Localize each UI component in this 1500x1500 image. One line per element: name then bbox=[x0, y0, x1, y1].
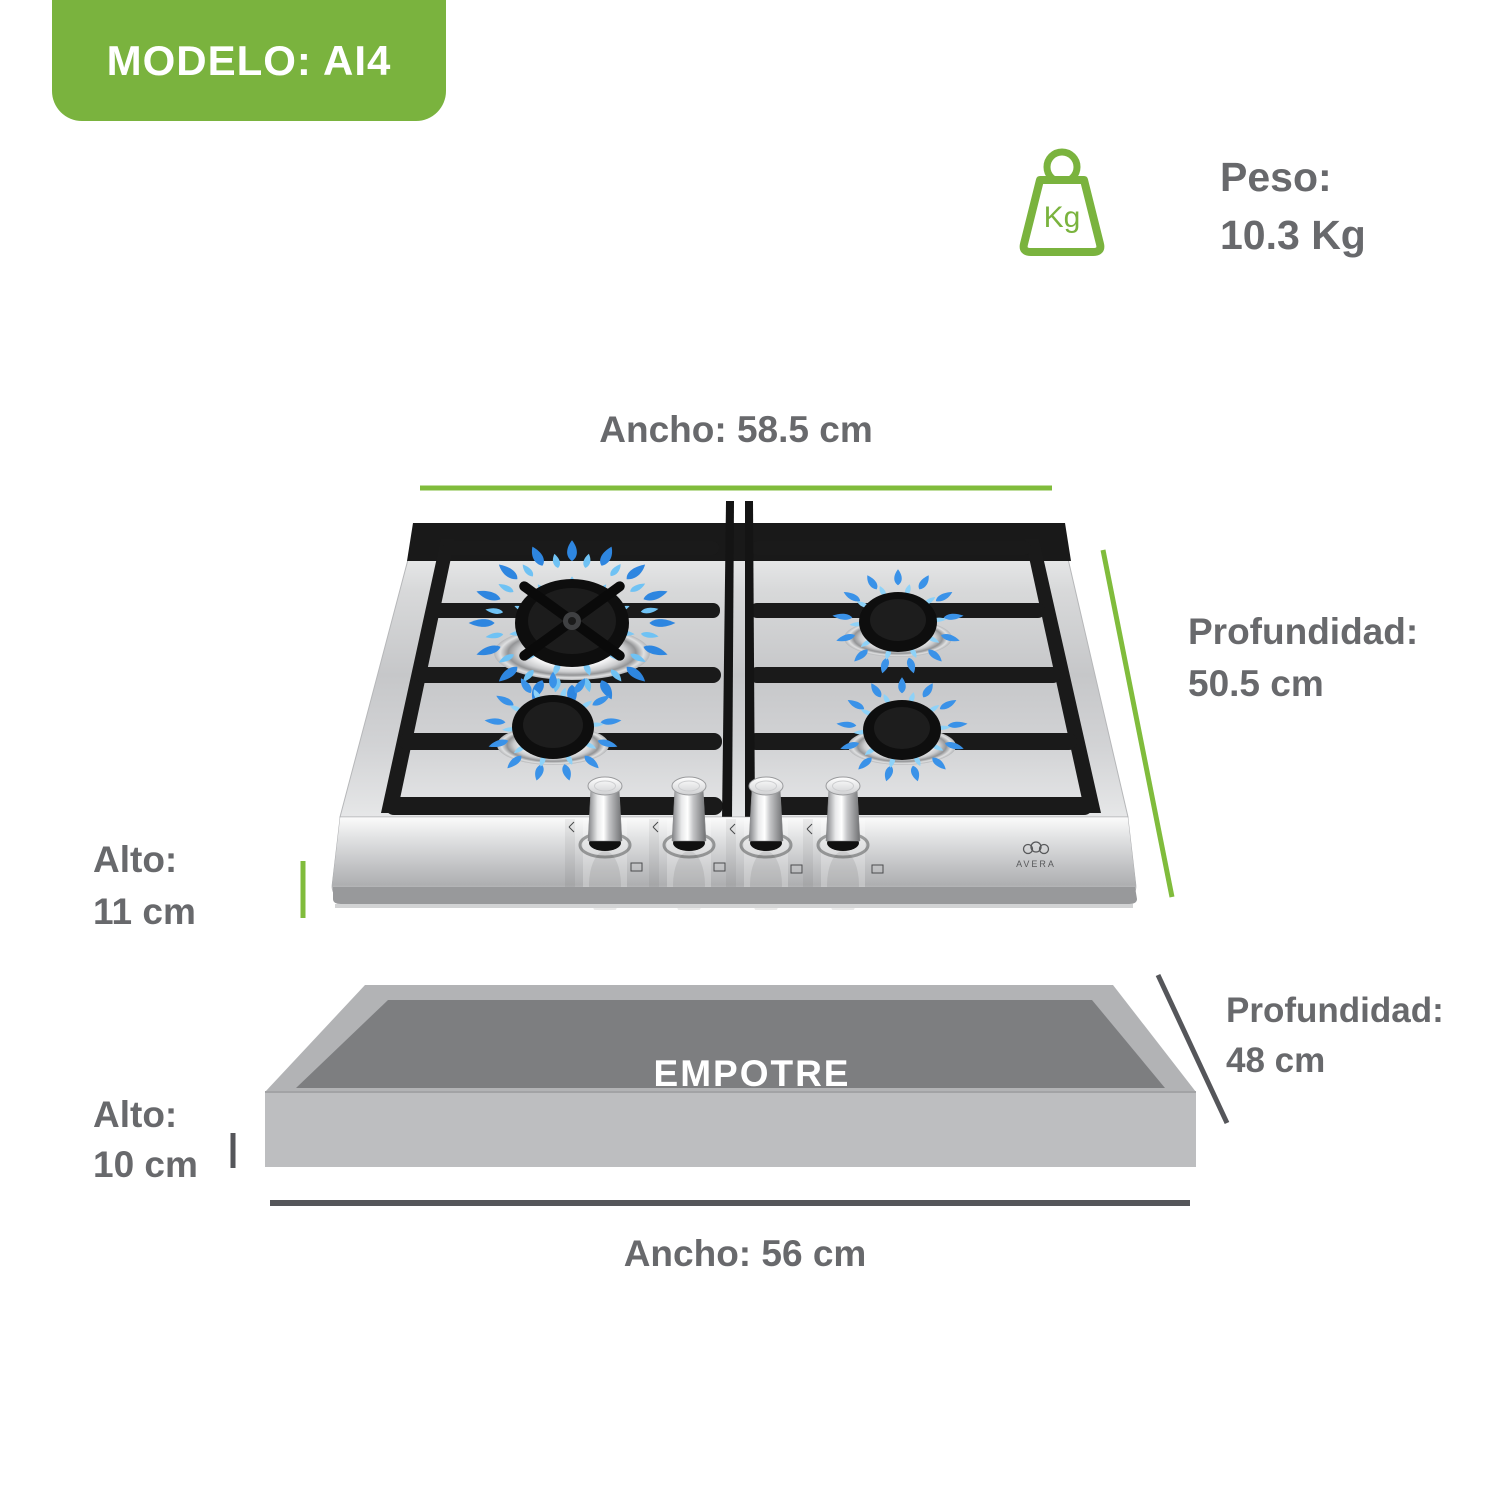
knob-1 bbox=[580, 777, 630, 910]
label-height-cutout: Alto: 10 cm bbox=[93, 1090, 198, 1190]
burner-front-left bbox=[484, 672, 622, 781]
cooktop-illustration: AVERA bbox=[325, 495, 1145, 910]
cooktop-back-rim bbox=[407, 523, 1071, 561]
brand-logo-icon bbox=[1024, 842, 1049, 854]
label-height-cutout-line2: 10 cm bbox=[93, 1140, 198, 1190]
knob-3 bbox=[741, 777, 791, 910]
cutout-outer-body bbox=[265, 985, 1196, 1167]
weight-ring bbox=[1047, 152, 1077, 182]
cutout-diagram: EMPOTRE bbox=[250, 975, 1210, 1175]
product-dimension-infographic: MODELO: AI4 Kg Peso: 10.3 Kg Ancho: 58.5… bbox=[0, 0, 1500, 1500]
burner-cross-support bbox=[517, 579, 626, 662]
kg-weight-icon: Kg bbox=[1000, 140, 1128, 268]
label-height-top: Alto: 11 cm bbox=[93, 834, 196, 938]
depth-top-line bbox=[1103, 550, 1172, 897]
burner-back-left bbox=[469, 540, 676, 705]
brand-logo: AVERA bbox=[1016, 842, 1056, 869]
depth-cutout-line bbox=[1158, 975, 1227, 1123]
label-depth-top-line2: 50.5 cm bbox=[1188, 658, 1418, 710]
weight-body bbox=[1024, 180, 1101, 252]
weight-label: Peso: 10.3 Kg bbox=[1220, 148, 1366, 264]
cooktop-front-panel bbox=[332, 817, 1136, 897]
weight-value: 10.3 Kg bbox=[1220, 206, 1366, 264]
cutout-label: EMPOTRE bbox=[654, 1053, 851, 1094]
label-depth-top: Profundidad: 50.5 cm bbox=[1188, 606, 1418, 710]
burner-front-right bbox=[836, 677, 968, 782]
right-grate bbox=[747, 539, 1101, 815]
label-depth-top-line1: Profundidad: bbox=[1188, 606, 1418, 658]
label-height-top-line1: Alto: bbox=[93, 834, 196, 886]
label-depth-cutout-line1: Profundidad: bbox=[1226, 986, 1444, 1036]
cooktop-bottom-edge bbox=[333, 887, 1137, 904]
label-depth-cutout: Profundidad: 48 cm bbox=[1226, 986, 1444, 1086]
knob-4 bbox=[818, 777, 868, 910]
label-depth-cutout-line2: 48 cm bbox=[1226, 1036, 1444, 1086]
brand-name: AVERA bbox=[1016, 859, 1056, 869]
front-panel-reflections bbox=[565, 819, 865, 895]
label-width-cutout: Ancho: 56 cm bbox=[420, 1228, 1070, 1280]
cooktop-top-surface bbox=[340, 533, 1128, 817]
center-grate-divider bbox=[722, 501, 755, 819]
label-width-top: Ancho: 58.5 cm bbox=[420, 404, 1052, 456]
label-height-cutout-line1: Alto: bbox=[93, 1090, 198, 1140]
label-height-top-line2: 11 cm bbox=[93, 886, 196, 938]
weight-icon-label: Kg bbox=[1044, 201, 1081, 234]
control-knobs bbox=[580, 777, 868, 910]
weight-title: Peso: bbox=[1220, 148, 1366, 206]
cutout-inner-recess bbox=[296, 1000, 1165, 1088]
burner-back-right bbox=[832, 569, 964, 674]
model-badge-label: MODELO: AI4 bbox=[107, 37, 392, 85]
left-grate bbox=[381, 539, 723, 815]
knob-2 bbox=[664, 777, 714, 910]
cooktop-shadow bbox=[335, 904, 1133, 908]
burner-indicator-icons bbox=[569, 822, 883, 873]
model-badge: MODELO: AI4 bbox=[52, 0, 446, 121]
cutout-front-face bbox=[265, 1092, 1196, 1167]
